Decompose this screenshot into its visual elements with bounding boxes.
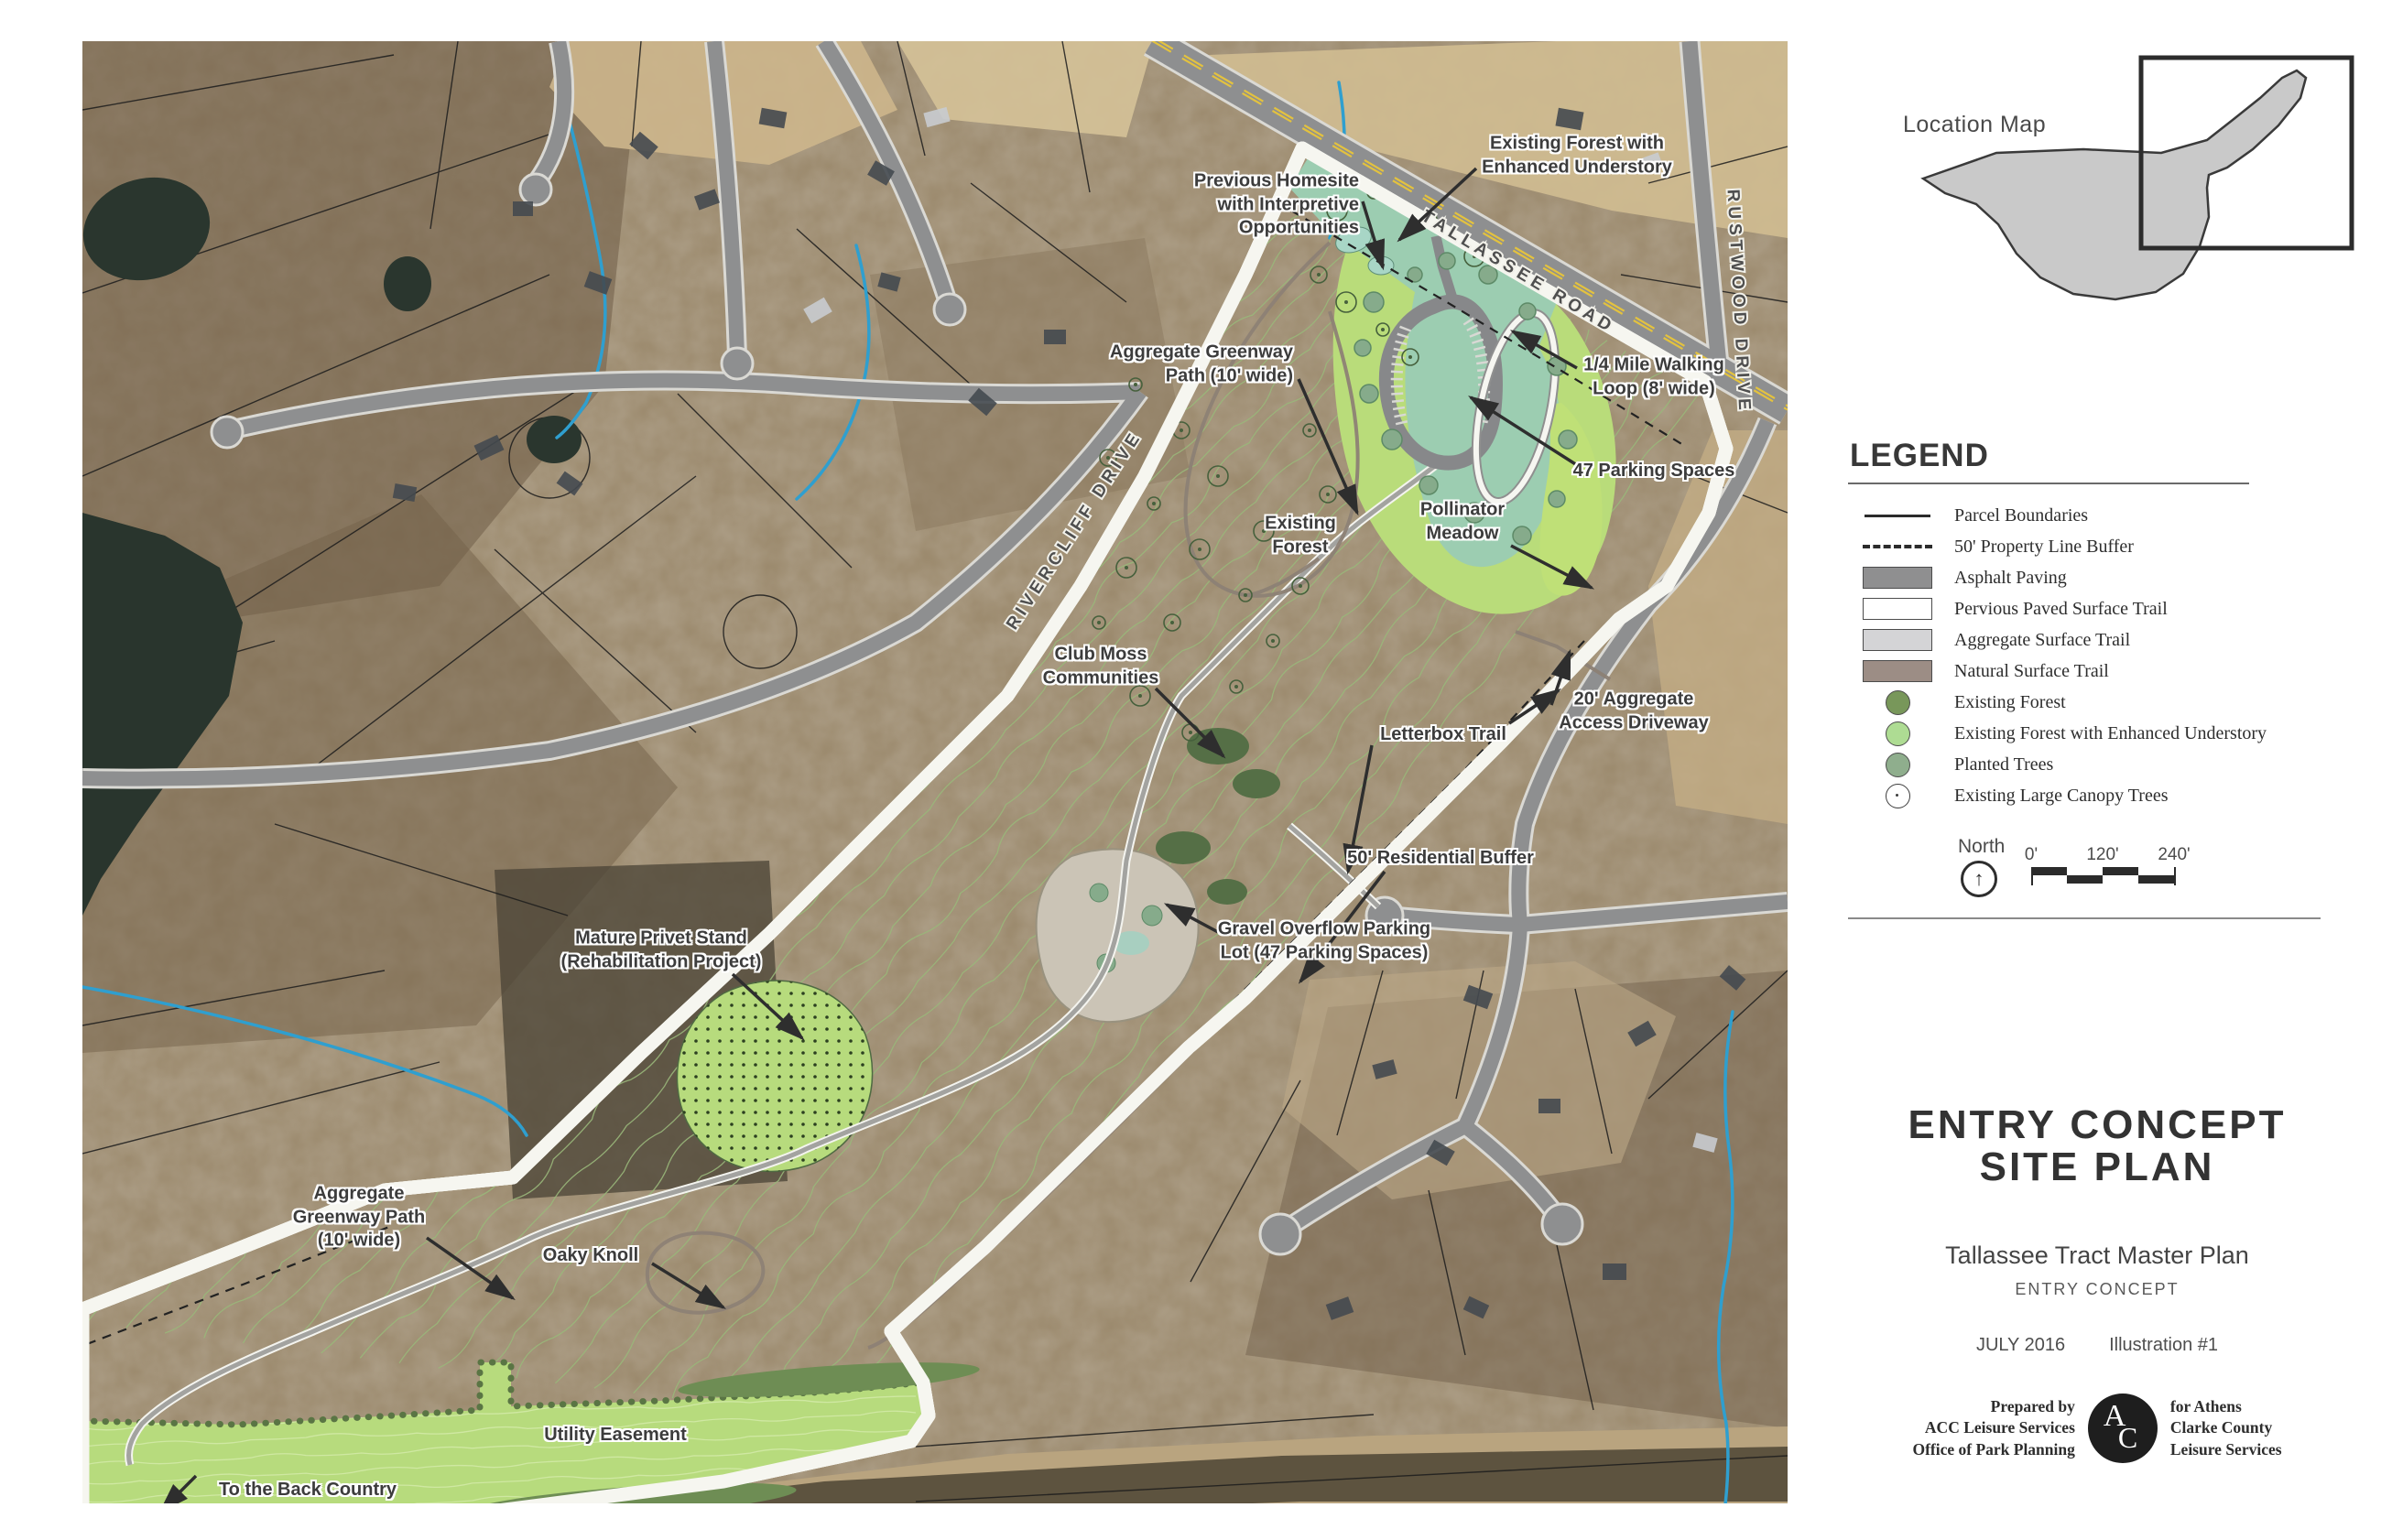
legend-key-circle-icon [1850, 690, 1945, 715]
legend-swatch [1863, 660, 1932, 682]
legend-swatch [1886, 721, 1910, 746]
aerial-map-canvas: TALLASSEE ROADRUSTWOOD DRIVERIVERCLIFF D… [82, 41, 1788, 1503]
panel-divider [1848, 917, 2321, 919]
canopy-tree-dot [1318, 274, 1320, 276]
legend-label: Planted Trees [1945, 754, 2053, 775]
legend-key-rect-icon [1850, 567, 1945, 589]
legend-swatch [1886, 753, 1910, 777]
credit-line: Office of Park Planning [1912, 1439, 2074, 1461]
scale-tick [2031, 867, 2033, 885]
canopy-tree-dot [1171, 622, 1173, 624]
credit-line: for Athens [2170, 1396, 2282, 1418]
legend-label: Existing Large Canopy Trees [1945, 786, 2169, 807]
canopy-tree-dot [1245, 594, 1246, 596]
scale-label: 240' [2158, 845, 2190, 865]
legend-swatch [1863, 567, 1932, 589]
canopy-tree-dot [1098, 622, 1100, 624]
legend-item: Planted Trees [1850, 749, 2326, 780]
legend-item: Parcel Boundaries [1850, 500, 2326, 531]
legend-key-circle-icon [1850, 721, 1945, 746]
scale-label: 120' [2086, 845, 2118, 865]
sheet-title-line1: ENTRY CONCEPT [1850, 1102, 2344, 1148]
legend-swatch [1863, 598, 1932, 620]
legend-key-circle-outline-icon [1850, 784, 1945, 808]
credit-line: ACC Leisure Services [1912, 1417, 2074, 1439]
legend: Parcel Boundaries50' Property Line Buffe… [1850, 500, 2326, 811]
plan-date: JULY 2016 [1976, 1335, 2065, 1356]
canopy-tree-dot [1235, 686, 1237, 688]
canopy-tree-dot [1217, 475, 1219, 477]
legend-title: LEGEND [1850, 438, 1989, 474]
site-plan-map: TALLASSEE ROADRUSTWOOD DRIVERIVERCLIFF D… [82, 41, 1788, 1503]
legend-item: Pervious Paved Surface Trail [1850, 593, 2326, 624]
legend-item: Natural Surface Trail [1850, 656, 2326, 687]
legend-key-dash-icon [1850, 545, 1945, 548]
legend-label: Asphalt Paving [1945, 568, 2067, 589]
canopy-tree-dot [1336, 210, 1338, 211]
legend-label: 50' Property Line Buffer [1945, 537, 2134, 558]
canopy-tree-dot [1190, 732, 1191, 733]
legend-item: Aggregate Surface Trail [1850, 624, 2326, 656]
canopy-tree-dot [1345, 301, 1347, 303]
canopy-tree-dot [1125, 567, 1127, 569]
scale-segment [2138, 875, 2174, 884]
scale-tick [2174, 867, 2176, 885]
legend-rule [1848, 483, 2249, 484]
legend-item: 50' Property Line Buffer [1850, 531, 2326, 562]
scale-segment [2067, 875, 2103, 884]
north-arrow-icon: ↑ [1961, 861, 1997, 897]
legend-label: Parcel Boundaries [1945, 505, 2088, 526]
scale-segment [2031, 867, 2067, 875]
legend-label: Aggregate Surface Trail [1945, 630, 2130, 651]
legend-key-line-icon [1850, 515, 1945, 517]
date-row: JULY 2016 Illustration #1 [1850, 1335, 2344, 1356]
legend-key-rect-icon [1850, 660, 1945, 682]
canopy-tree-dot [1135, 384, 1136, 385]
plan-subtitle: Tallassee Tract Master Plan [1850, 1242, 2344, 1270]
legend-key-circle-icon [1850, 753, 1945, 777]
legend-item: Existing Large Canopy Trees [1850, 780, 2326, 811]
canopy-tree-dot [1327, 493, 1329, 495]
prepared-for: for AthensClarke CountyLeisure Services [2170, 1396, 2282, 1461]
legend-swatch [1886, 690, 1910, 715]
credit-line: Leisure Services [2170, 1439, 2282, 1461]
north-label: North [1958, 836, 2005, 858]
legend-swatch [1886, 784, 1910, 808]
legend-swatch [1865, 515, 1930, 517]
prepared-by: Prepared byACC Leisure ServicesOffice of… [1912, 1396, 2074, 1461]
plan-subtitle2: ENTRY CONCEPT [1850, 1280, 2344, 1299]
legend-item: Asphalt Paving [1850, 562, 2326, 593]
canopy-tree-dot [1263, 530, 1265, 532]
canopy-tree-dot [1272, 640, 1274, 642]
scale-bar: 0'120'240' [2031, 867, 2174, 885]
credit-line: Clarke County [2170, 1417, 2282, 1439]
legend-label: Pervious Paved Surface Trail [1945, 599, 2168, 620]
credits: Prepared byACC Leisure ServicesOffice of… [1839, 1394, 2355, 1463]
credit-line: Prepared by [1912, 1396, 2074, 1418]
canopy-tree-dot [1180, 429, 1182, 431]
legend-label: Natural Surface Trail [1945, 661, 2109, 682]
legend-label: Existing Forest [1945, 692, 2066, 713]
canopy-tree-dot [1139, 695, 1141, 697]
legend-item: Existing Forest [1850, 687, 2326, 718]
legend-item: Existing Forest with Enhanced Understory [1850, 718, 2326, 749]
legend-swatch [1863, 629, 1932, 651]
page: { "palette":{ "forest_green":"#6e8d54","… [0, 0, 2381, 1540]
acc-logo: A C [2088, 1394, 2158, 1463]
location-map [1868, 50, 2363, 325]
canopy-tree-dot [1309, 429, 1310, 431]
logo-letter-c: C [2118, 1421, 2137, 1455]
canopy-tree-dot [1153, 503, 1155, 504]
canopy-tree-dot [1409, 356, 1411, 358]
scale-segment [2103, 867, 2138, 875]
canopy-tree-dot [1199, 548, 1201, 550]
canopy-tree-dot [1382, 329, 1384, 331]
scale-label: 0' [2025, 845, 2038, 865]
illustration-number: Illustration #1 [2109, 1335, 2218, 1356]
legend-label: Existing Forest with Enhanced Understory [1945, 723, 2267, 744]
legend-key-rect-icon [1850, 629, 1945, 651]
canopy-tree-dot [1299, 585, 1301, 587]
legend-key-rect-icon [1850, 598, 1945, 620]
location-map-title: Location Map [1903, 112, 2046, 138]
county-outline [1923, 70, 2306, 299]
legend-swatch [1863, 545, 1932, 548]
sheet-title-line2: SITE PLAN [1850, 1144, 2344, 1190]
